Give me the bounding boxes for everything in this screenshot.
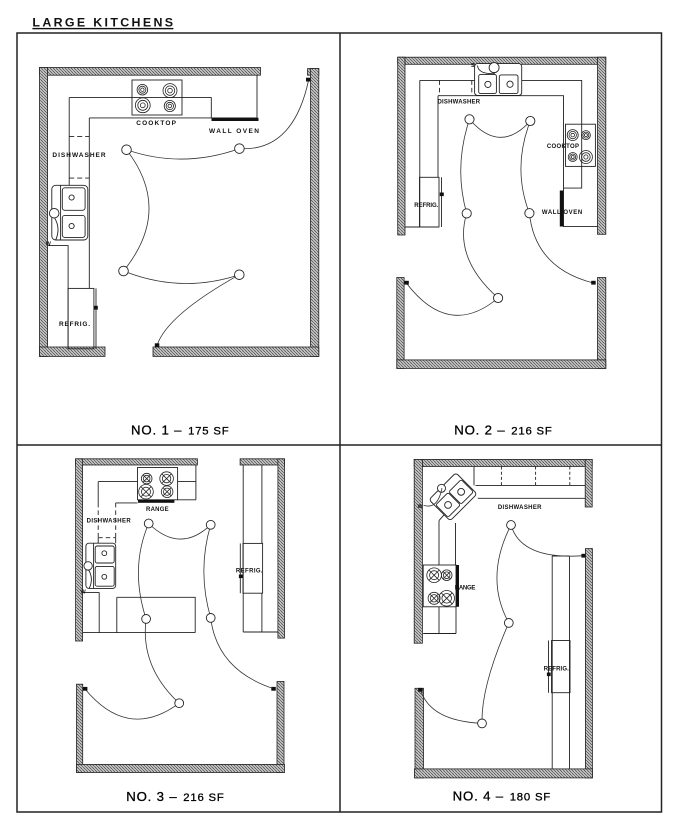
svg-text:RANGE: RANGE bbox=[455, 585, 476, 591]
svg-text:DISHWASHER: DISHWASHER bbox=[87, 518, 132, 524]
svg-text:NO. 4 –: NO. 4 – bbox=[453, 789, 504, 804]
svg-text:DISHWASHER: DISHWASHER bbox=[498, 505, 542, 511]
svg-text:W: W bbox=[46, 242, 52, 248]
svg-text:NO. 2 –: NO. 2 – bbox=[454, 422, 505, 437]
svg-text:COOKTOP: COOKTOP bbox=[547, 144, 579, 150]
svg-text:REFRIG.: REFRIG. bbox=[236, 569, 263, 575]
svg-text:216 SF: 216 SF bbox=[511, 425, 552, 437]
svg-text:DISHWASHER: DISHWASHER bbox=[438, 99, 481, 105]
svg-text:REFRIG.: REFRIG. bbox=[414, 203, 438, 209]
svg-text:LARGE KITCHENS: LARGE KITCHENS bbox=[32, 16, 173, 30]
svg-text:RANGE: RANGE bbox=[146, 507, 169, 513]
svg-text:W: W bbox=[81, 590, 87, 596]
svg-text:REFRIG.: REFRIG. bbox=[544, 667, 569, 673]
svg-text:WALL OVEN: WALL OVEN bbox=[542, 210, 582, 216]
svg-text:S: S bbox=[471, 63, 475, 69]
svg-text:W: W bbox=[418, 504, 424, 510]
svg-text:NO. 1 –: NO. 1 – bbox=[131, 422, 182, 437]
svg-text:175 SF: 175 SF bbox=[188, 425, 229, 437]
svg-text:REFRIG.: REFRIG. bbox=[59, 321, 90, 328]
svg-text:NO. 3 –: NO. 3 – bbox=[126, 789, 177, 804]
svg-text:COOKTOP: COOKTOP bbox=[136, 120, 176, 127]
svg-text:180 SF: 180 SF bbox=[510, 792, 551, 804]
svg-text:DISHWASHER: DISHWASHER bbox=[52, 152, 105, 159]
svg-text:WALL OVEN: WALL OVEN bbox=[209, 128, 259, 135]
svg-text:216 SF: 216 SF bbox=[183, 792, 224, 804]
